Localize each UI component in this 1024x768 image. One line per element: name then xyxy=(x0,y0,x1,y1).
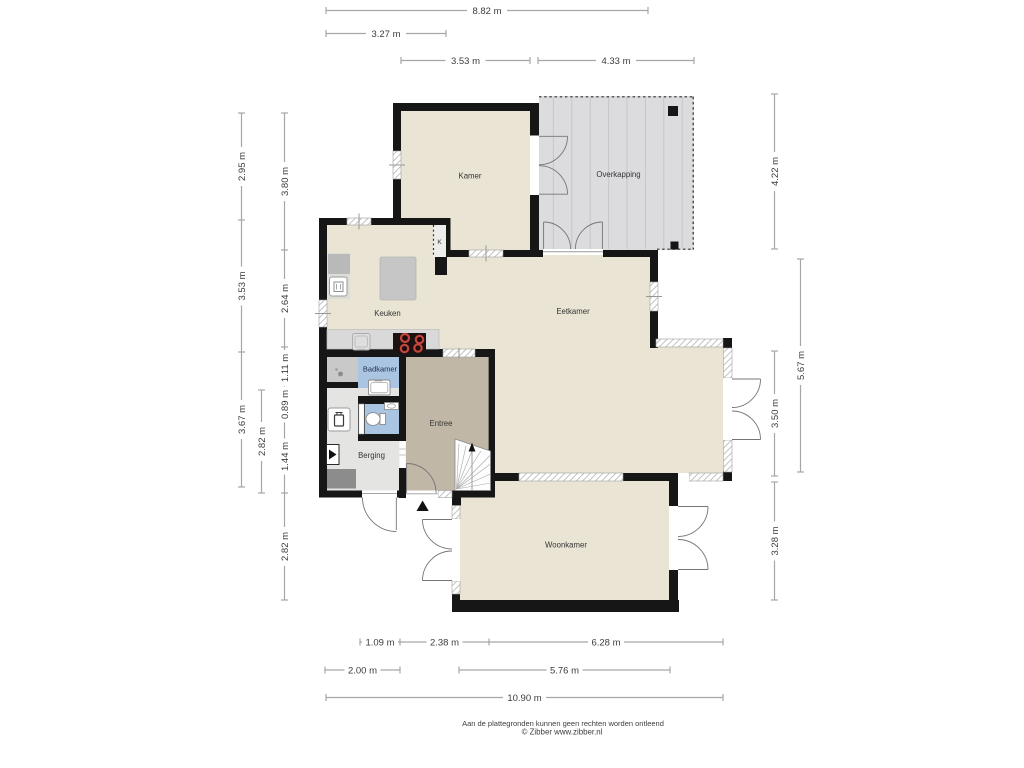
svg-text:Keuken: Keuken xyxy=(374,309,400,318)
svg-text:3.53 m: 3.53 m xyxy=(237,271,248,300)
svg-text:Berging: Berging xyxy=(358,451,385,460)
svg-text:0.89 m: 0.89 m xyxy=(280,390,291,419)
svg-text:3.67 m: 3.67 m xyxy=(237,405,248,434)
svg-text:Overkapping: Overkapping xyxy=(596,170,640,179)
svg-text:3.53 m: 3.53 m xyxy=(451,56,480,67)
svg-text:3.28 m: 3.28 m xyxy=(770,526,781,555)
svg-text:Entree: Entree xyxy=(430,419,453,428)
svg-text:5.76 m: 5.76 m xyxy=(550,666,579,677)
svg-text:2.82 m: 2.82 m xyxy=(280,532,291,561)
svg-text:2.95 m: 2.95 m xyxy=(237,152,248,181)
svg-text:Kamer: Kamer xyxy=(459,172,482,181)
svg-text:10.90 m: 10.90 m xyxy=(507,693,541,704)
svg-text:Badkamer: Badkamer xyxy=(363,365,398,374)
svg-text:6.28 m: 6.28 m xyxy=(591,638,620,649)
svg-text:Woonkamer: Woonkamer xyxy=(545,541,587,550)
svg-text:3.80 m: 3.80 m xyxy=(280,167,291,196)
svg-text:4.33 m: 4.33 m xyxy=(601,56,630,67)
svg-text:1.44 m: 1.44 m xyxy=(280,442,291,471)
svg-text:3.50 m: 3.50 m xyxy=(770,399,781,428)
svg-text:1.09 m: 1.09 m xyxy=(365,638,394,649)
svg-text:Eetkamer: Eetkamer xyxy=(556,307,590,316)
svg-text:2.82 m: 2.82 m xyxy=(257,427,268,456)
svg-text:4.22 m: 4.22 m xyxy=(770,157,781,186)
svg-text:1.11 m: 1.11 m xyxy=(280,354,291,382)
svg-text:K: K xyxy=(437,239,442,246)
svg-text:2.00 m: 2.00 m xyxy=(348,666,377,677)
svg-text:2.38 m: 2.38 m xyxy=(430,638,459,649)
svg-text:8.82 m: 8.82 m xyxy=(472,6,501,17)
svg-text:3.27 m: 3.27 m xyxy=(371,29,400,40)
svg-text:© Zibber www.zibber.nl: © Zibber www.zibber.nl xyxy=(522,728,603,737)
svg-text:5.67 m: 5.67 m xyxy=(796,351,807,380)
svg-text:2.64 m: 2.64 m xyxy=(280,284,291,313)
